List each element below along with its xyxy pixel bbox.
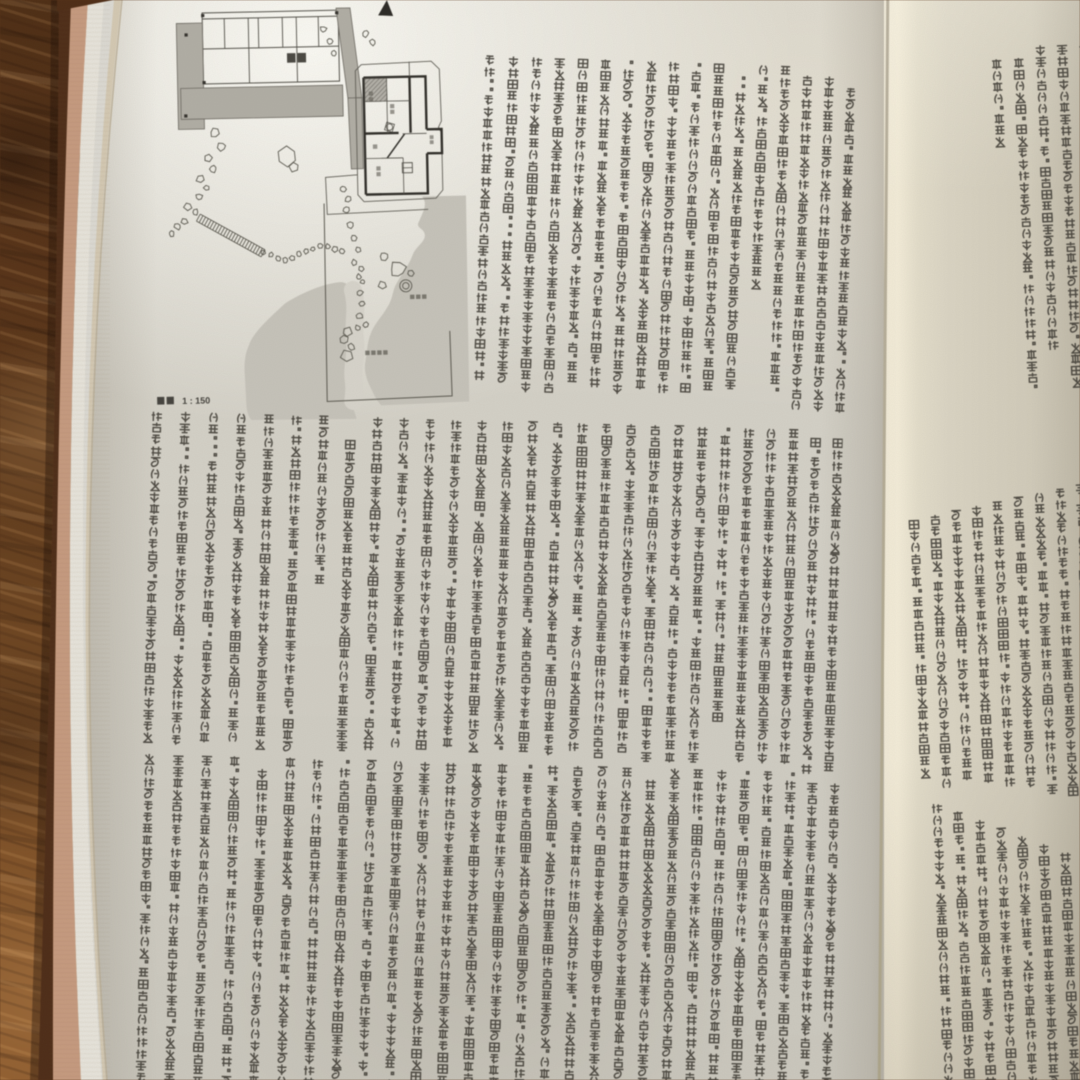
svg-text:1 : 150: 1 : 150 xyxy=(182,395,210,406)
